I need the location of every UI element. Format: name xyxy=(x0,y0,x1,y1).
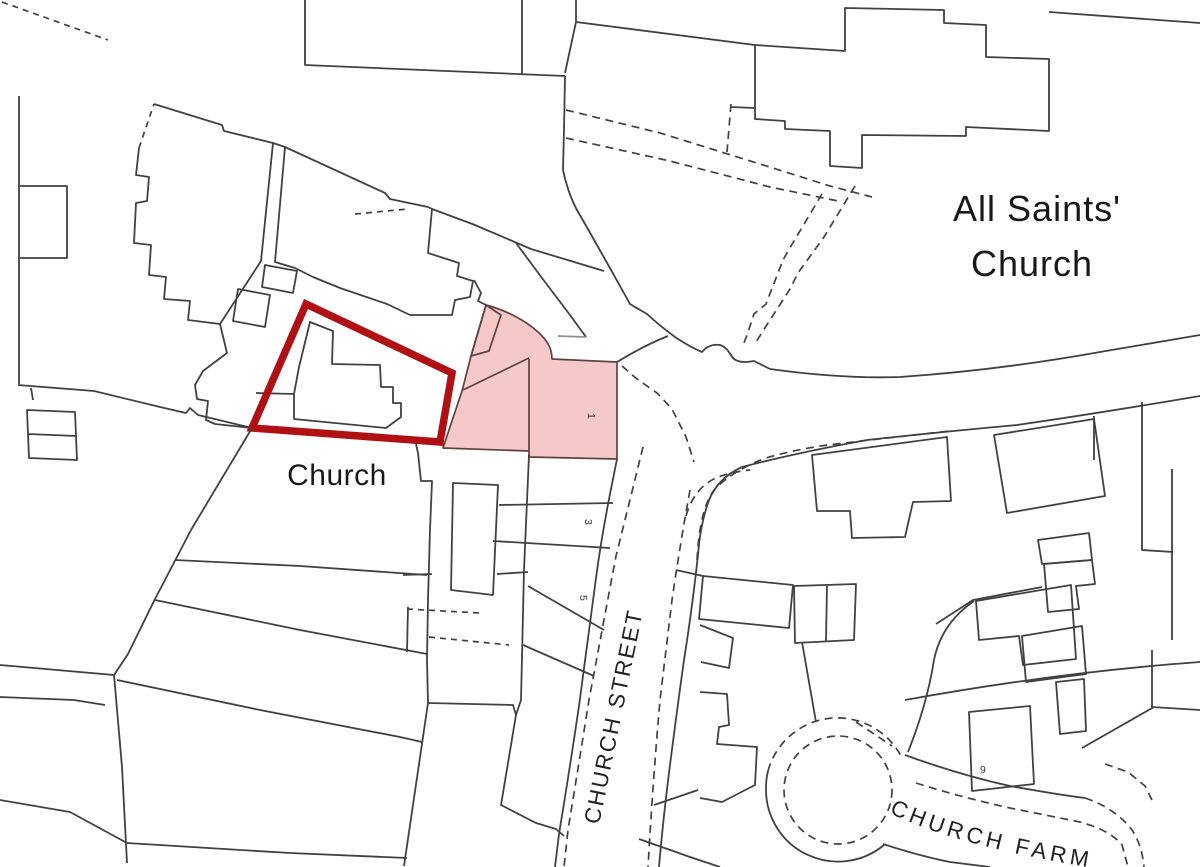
svg-text:5: 5 xyxy=(577,595,589,601)
svg-text:3: 3 xyxy=(582,519,594,525)
svg-text:All Saints': All Saints' xyxy=(953,188,1121,229)
svg-text:Church: Church xyxy=(287,459,387,492)
svg-text:Church: Church xyxy=(971,243,1093,284)
svg-text:9: 9 xyxy=(980,764,986,776)
svg-text:1: 1 xyxy=(585,413,597,419)
